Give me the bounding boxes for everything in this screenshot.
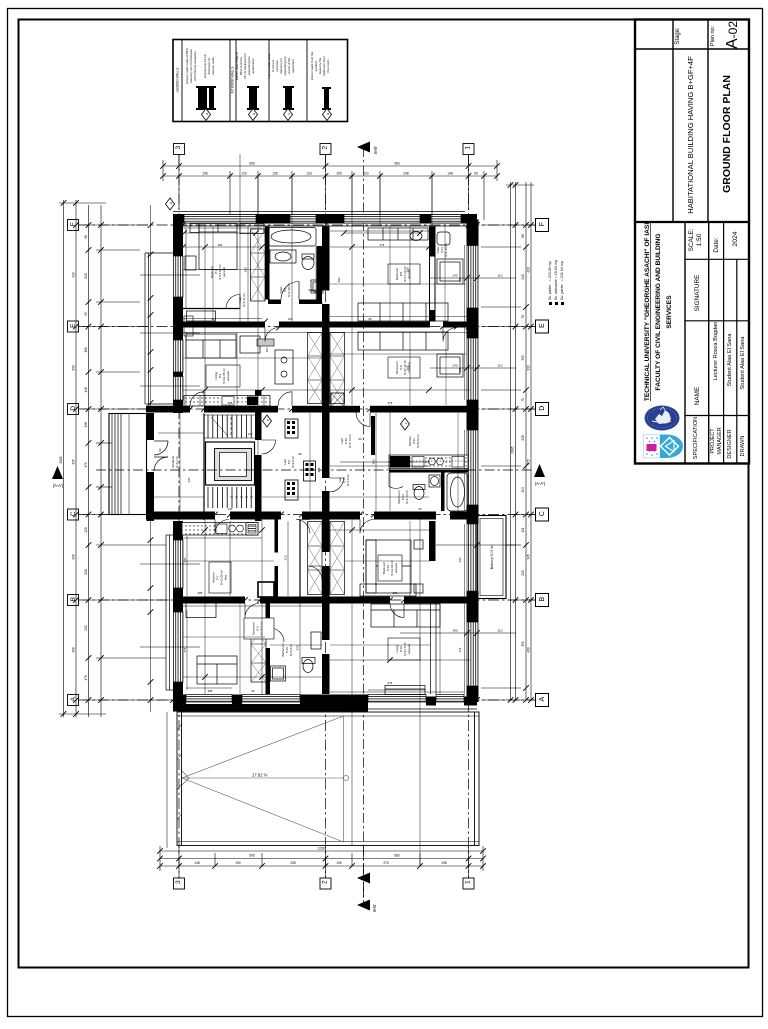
svg-text:HABITATIONAL BUILDING HAVING B: HABITATIONAL BUILDING HAVING B+GF+4F	[686, 56, 695, 214]
svg-text:240: 240	[521, 274, 525, 280]
svg-text:583: 583	[394, 854, 400, 858]
svg-text:385: 385	[228, 401, 233, 405]
svg-text:148: 148	[447, 172, 453, 176]
svg-text:148: 148	[194, 861, 200, 865]
svg-text:parquet: parquet	[407, 644, 411, 654]
svg-text:148: 148	[84, 387, 88, 393]
svg-text:295: 295	[406, 365, 410, 370]
svg-text:240: 240	[452, 274, 457, 278]
svg-text:Stage:: Stage:	[675, 27, 681, 45]
svg-text:1236: 1236	[317, 847, 324, 851]
svg-text:DESIGNER: DESIGNER	[727, 429, 733, 458]
svg-text:352: 352	[521, 641, 525, 647]
svg-text:78: 78	[521, 315, 525, 319]
svg-text:S=4.30 m²: S=4.30 m²	[287, 283, 291, 297]
svg-text:FACULTY OF CIVIL ENGINEERING A: FACULTY OF CIVIL ENGINEERING AND BUILDIN…	[655, 234, 662, 391]
svg-text:400: 400	[372, 459, 376, 464]
svg-text:175: 175	[84, 462, 88, 468]
svg-text:196: 196	[202, 172, 208, 176]
svg-text:B-B': B-B'	[373, 146, 378, 154]
svg-text:75: 75	[521, 398, 525, 402]
svg-text:apartments: apartments	[251, 58, 255, 74]
svg-text:90: 90	[251, 689, 255, 693]
svg-text:Su. parter = 131.04 mp: Su. parter = 131.04 mp	[560, 261, 564, 300]
svg-text:105: 105	[336, 172, 342, 176]
svg-text:Student Alaa El Sana: Student Alaa El Sana	[727, 333, 733, 387]
svg-text:390: 390	[218, 243, 223, 247]
svg-text:376: 376	[183, 647, 187, 652]
svg-text:LEGEND WALLS: LEGEND WALLS	[176, 68, 180, 93]
svg-text:376: 376	[380, 243, 385, 247]
svg-text:240: 240	[452, 364, 457, 368]
svg-text:1: 1	[464, 146, 471, 150]
svg-text:tiles: tiles	[224, 574, 228, 580]
svg-text:E: E	[539, 323, 546, 328]
svg-text:GROUND FLOOR PLAN: GROUND FLOOR PLAN	[721, 75, 733, 193]
svg-text:exterior walls: exterior walls	[211, 57, 215, 75]
svg-text:110: 110	[498, 364, 503, 368]
svg-text:425: 425	[527, 459, 531, 465]
svg-text:b: b	[252, 113, 256, 115]
svg-text:365: 365	[317, 467, 321, 472]
svg-text:SCALE:: SCALE:	[688, 228, 695, 251]
svg-text:90: 90	[418, 507, 422, 511]
svg-text:DRAWN: DRAWN	[740, 436, 746, 457]
svg-text:332: 332	[521, 355, 525, 361]
svg-text:S=8.22 m²: S=8.22 m²	[416, 434, 420, 448]
svg-text:130: 130	[228, 507, 233, 511]
svg-text:255: 255	[290, 861, 296, 865]
svg-text:1: 1	[464, 880, 471, 884]
svg-text:170: 170	[84, 675, 88, 681]
svg-text:275: 275	[383, 861, 389, 865]
svg-text:SPECIFICATION: SPECIFICATION	[693, 417, 699, 459]
svg-text:120: 120	[187, 477, 191, 482]
svg-text:a: a	[205, 113, 209, 115]
svg-text:S=4.1 m²: S=4.1 m²	[175, 456, 179, 468]
svg-text:120: 120	[248, 432, 253, 436]
svg-text:390: 390	[244, 267, 248, 272]
svg-text:S=6.11 m²: S=6.11 m²	[242, 293, 246, 307]
svg-text:3: 3	[175, 146, 182, 150]
svg-text:B-B': B-B'	[372, 904, 377, 912]
svg-text:17.61 %: 17.61 %	[252, 773, 268, 778]
svg-text:Plan no:: Plan no:	[710, 25, 716, 46]
svg-text:110: 110	[498, 274, 503, 278]
svg-text:S=4.9 m²: S=4.9 m²	[289, 644, 293, 656]
svg-text:S=7.9 m²: S=7.9 m²	[346, 474, 350, 486]
svg-text:Sc. balcoane = 15.63 mp: Sc. balcoane = 15.63 mp	[554, 260, 558, 300]
svg-text:583: 583	[394, 162, 400, 166]
svg-text:SIGNATURE: SIGNATURE	[694, 275, 701, 312]
svg-text:333: 333	[527, 365, 531, 371]
svg-text:88: 88	[521, 234, 525, 238]
svg-text:310: 310	[183, 557, 187, 562]
svg-text:2: 2	[321, 880, 328, 884]
svg-text:400: 400	[72, 647, 76, 653]
svg-text:C: C	[539, 511, 546, 516]
svg-text:280: 280	[452, 629, 457, 633]
svg-text:120: 120	[241, 172, 247, 176]
svg-text:S=9.8 m²: S=9.8 m²	[291, 456, 295, 468]
svg-text:198: 198	[441, 861, 447, 865]
svg-text:parquet: parquet	[394, 563, 398, 573]
svg-text:MANAGER: MANAGER	[717, 427, 723, 454]
svg-text:D: D	[539, 406, 546, 411]
svg-text:135: 135	[272, 172, 278, 176]
svg-text:410: 410	[527, 267, 531, 273]
svg-text:2024: 2024	[732, 231, 739, 246]
svg-text:400: 400	[527, 647, 531, 653]
svg-text:A-02: A-02	[724, 21, 741, 49]
svg-text:apartment: apartment	[291, 59, 295, 73]
svg-text:180: 180	[84, 347, 88, 353]
svg-text:PROJECT: PROJECT	[710, 428, 716, 454]
svg-text:250: 250	[393, 591, 398, 595]
svg-text:376: 376	[388, 681, 393, 685]
svg-text:210: 210	[84, 273, 88, 279]
svg-text:90: 90	[158, 448, 162, 452]
svg-text:A: A	[539, 697, 546, 702]
svg-text:333: 333	[72, 365, 76, 371]
svg-text:S=4.74 m²: S=4.74 m²	[348, 434, 352, 448]
svg-text:390: 390	[406, 267, 410, 272]
svg-text:parquet: parquet	[226, 371, 230, 381]
svg-text:190: 190	[235, 861, 241, 865]
svg-text:1:50: 1:50	[696, 233, 703, 246]
svg-text:TECHNICAL UNIVERSITY "GHEORGHE: TECHNICAL UNIVERSITY "GHEORGHE ASACHI" O…	[644, 223, 651, 401]
svg-text:228: 228	[84, 569, 88, 575]
svg-text:232: 232	[84, 625, 88, 631]
svg-text:c: c	[287, 113, 291, 115]
svg-text:INTERIOR WALLS: INTERIOR WALLS	[231, 67, 235, 94]
svg-text:60: 60	[474, 172, 478, 176]
svg-text:Student Alaa El Sana: Student Alaa El Sana	[740, 336, 746, 390]
svg-text:121: 121	[521, 527, 525, 533]
svg-text:B: B	[539, 597, 546, 602]
svg-text:F: F	[539, 222, 546, 226]
svg-text:2065: 2065	[511, 446, 515, 453]
svg-text:2065: 2065	[59, 456, 63, 463]
svg-text:593: 593	[249, 162, 255, 166]
svg-text:110: 110	[363, 172, 368, 176]
svg-text:120: 120	[288, 317, 293, 321]
svg-text:the rooms: the rooms	[326, 59, 330, 73]
svg-text:425: 425	[72, 459, 76, 465]
svg-text:NAME: NAME	[694, 387, 701, 405]
svg-text:310: 310	[284, 555, 288, 560]
svg-text:60: 60	[358, 437, 362, 441]
svg-text:110: 110	[498, 629, 503, 633]
svg-text:194: 194	[521, 487, 525, 493]
svg-text:370: 370	[296, 645, 300, 650]
svg-text:a: a	[169, 202, 173, 204]
svg-text:Sc. parter = 243.26 mp: Sc. parter = 243.26 mp	[548, 261, 552, 300]
svg-text:410: 410	[72, 272, 76, 278]
svg-text:(A-A'): (A-A')	[535, 481, 546, 486]
svg-text:with thermal insulation: with thermal insulation	[193, 51, 197, 81]
svg-text:390: 390	[337, 277, 341, 282]
svg-text:228: 228	[521, 435, 525, 441]
svg-text:SERVICES: SERVICES	[666, 295, 673, 329]
svg-text:Date:: Date:	[713, 237, 720, 252]
svg-text:Balcony 9.07 m²: Balcony 9.07 m²	[490, 544, 494, 569]
svg-text:S=15.9 m²: S=15.9 m²	[260, 622, 264, 636]
svg-text:345: 345	[527, 554, 531, 560]
svg-text:(A-A'): (A-A')	[53, 483, 64, 488]
svg-text:200: 200	[265, 347, 269, 352]
svg-text:2: 2	[321, 146, 328, 150]
svg-text:105: 105	[336, 861, 342, 865]
svg-text:385: 385	[208, 689, 213, 693]
svg-text:90: 90	[298, 452, 302, 456]
svg-text:Lecturer Rosca Bogdan: Lecturer Rosca Bogdan	[713, 322, 719, 381]
svg-text:parquet: parquet	[222, 267, 226, 277]
svg-text:593: 593	[249, 854, 255, 858]
svg-text:c: c	[404, 422, 408, 424]
svg-text:95: 95	[84, 312, 88, 316]
svg-text:320: 320	[458, 557, 462, 562]
svg-text:138: 138	[84, 422, 88, 428]
svg-text:295: 295	[458, 367, 462, 372]
svg-text:133: 133	[306, 172, 312, 176]
svg-text:345: 345	[72, 554, 76, 560]
svg-text:376: 376	[458, 647, 462, 652]
svg-text:80: 80	[368, 317, 372, 321]
svg-text:208: 208	[403, 172, 409, 176]
svg-text:120: 120	[84, 527, 88, 533]
svg-text:220: 220	[521, 570, 525, 576]
svg-text:376: 376	[458, 277, 462, 282]
svg-text:d: d	[326, 113, 330, 115]
svg-text:376: 376	[388, 401, 393, 405]
svg-text:b: b	[266, 419, 270, 421]
svg-text:385: 385	[198, 591, 203, 595]
svg-text:90: 90	[211, 317, 215, 321]
svg-text:3: 3	[175, 880, 182, 884]
svg-text:98: 98	[84, 235, 88, 239]
